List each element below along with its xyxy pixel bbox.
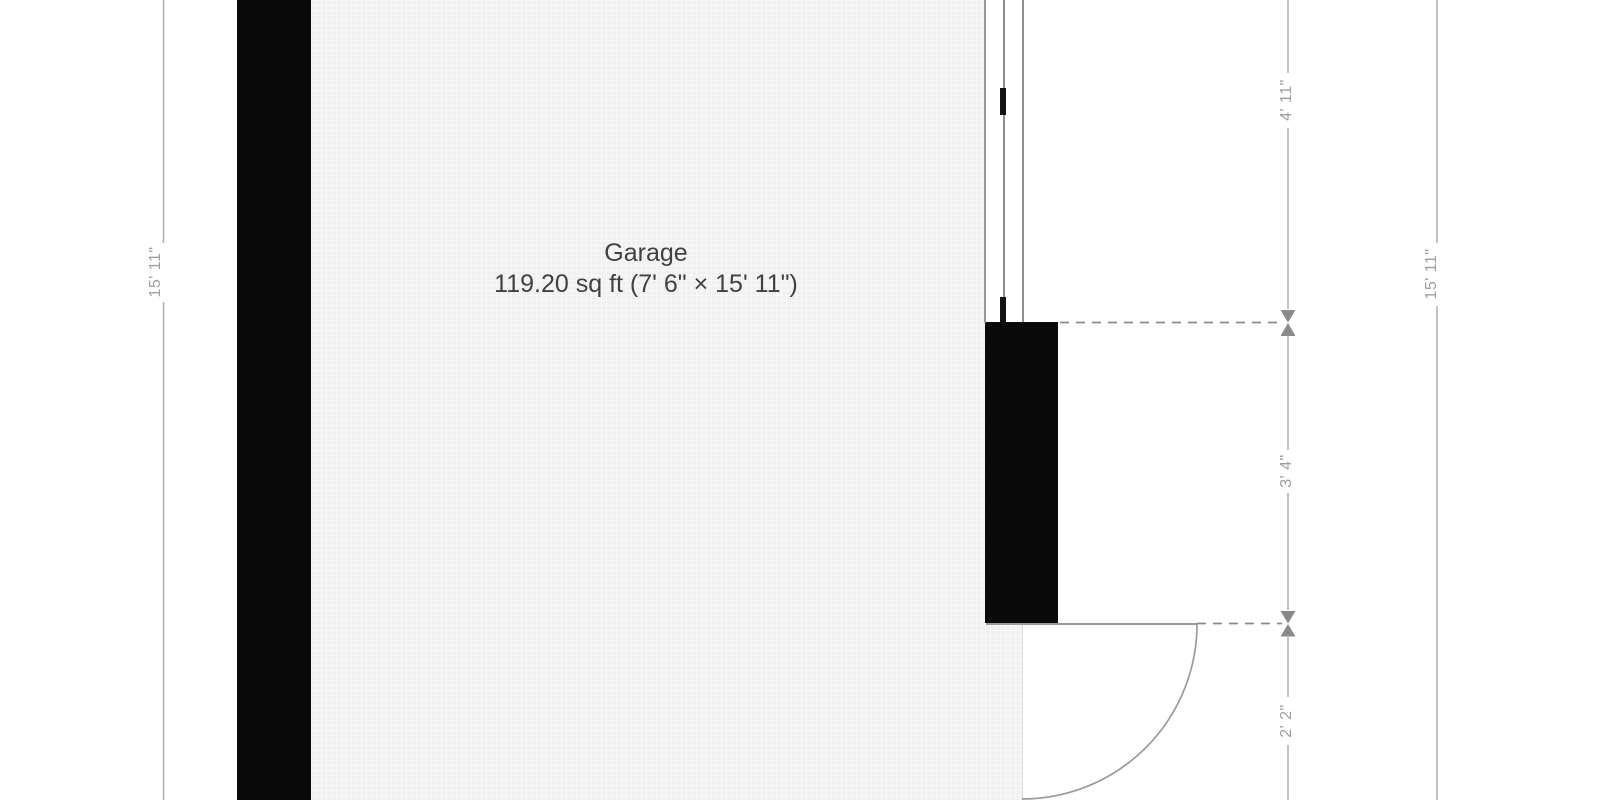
room-area-label: 119.20 sq ft (7' 6" × 15' 11") xyxy=(494,269,798,300)
floor-plan-canvas: Garage 119.20 sq ft (7' 6" × 15' 11") 15… xyxy=(0,0,1600,800)
plan-linework xyxy=(0,0,1600,800)
dimension-marker-bottom xyxy=(1281,611,1296,637)
door-swing-arc xyxy=(1022,624,1197,799)
dimension-label-total-height: 15' 11" xyxy=(1423,248,1441,299)
dimension-label-wall-section: 3' 4" xyxy=(1278,454,1296,487)
room-name: Garage xyxy=(494,238,798,269)
dimension-marker-top xyxy=(1281,310,1296,336)
dimension-label-door-section: 2' 2" xyxy=(1278,704,1296,737)
dimension-label-left-height: 15' 11" xyxy=(147,246,165,297)
dimension-label-window-section: 4' 11" xyxy=(1278,79,1296,121)
room-label[interactable]: Garage 119.20 sq ft (7' 6" × 15' 11") xyxy=(494,238,798,300)
